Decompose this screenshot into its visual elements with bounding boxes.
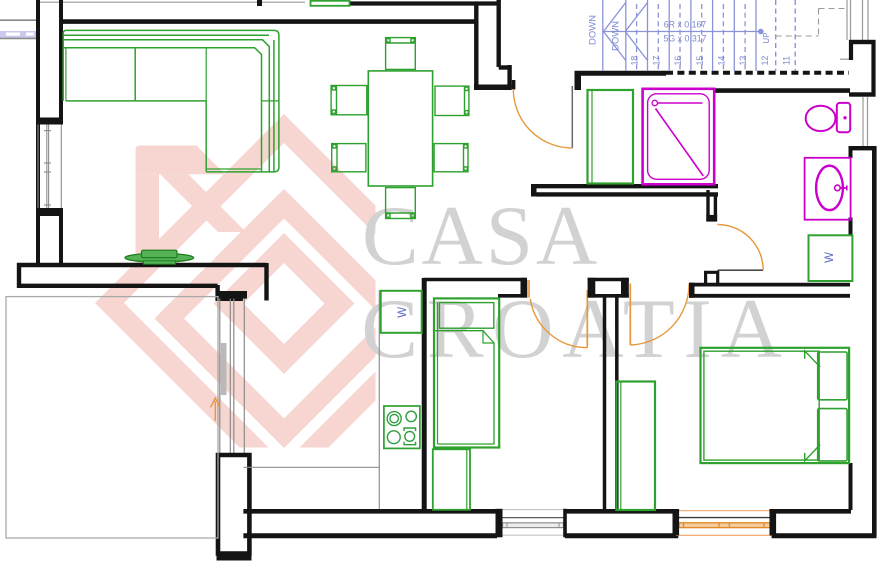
svg-text:CASA: CASA <box>362 189 600 283</box>
svg-text:16: 16 <box>673 56 683 66</box>
svg-text:14: 14 <box>717 56 727 66</box>
svg-text:17: 17 <box>651 56 661 66</box>
svg-text:6R x 0.167: 6R x 0.167 <box>664 20 707 30</box>
svg-text:15: 15 <box>695 56 705 66</box>
svg-text:11: 11 <box>782 56 792 65</box>
svg-text:13: 13 <box>738 56 748 66</box>
svg-text:W: W <box>824 252 836 263</box>
svg-text:12: 12 <box>760 56 770 66</box>
svg-text:UP: UP <box>762 32 771 43</box>
svg-text:5G x 0.317: 5G x 0.317 <box>663 34 706 44</box>
svg-text:DOWN: DOWN <box>588 15 599 45</box>
svg-text:18: 18 <box>630 56 640 66</box>
svg-text:W: W <box>397 307 409 318</box>
svg-text:DOWN: DOWN <box>611 21 622 51</box>
